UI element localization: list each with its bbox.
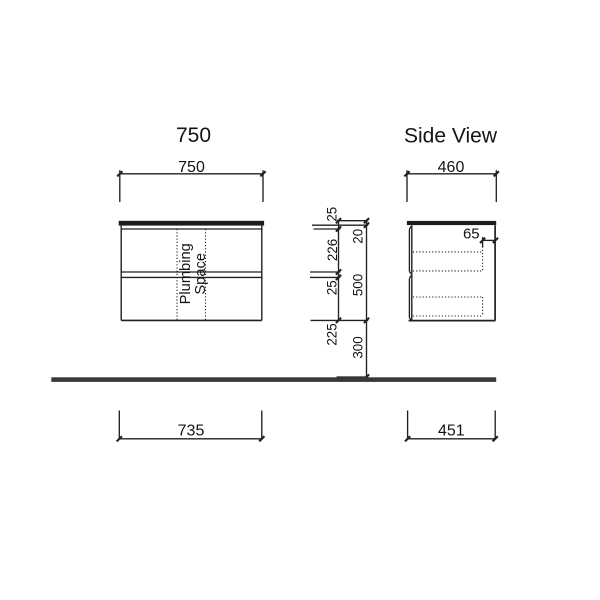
svg-text:65: 65 <box>463 225 480 242</box>
svg-text:25: 25 <box>324 280 339 295</box>
svg-text:735: 735 <box>178 423 205 440</box>
svg-text:750: 750 <box>176 124 211 147</box>
svg-text:20: 20 <box>351 229 366 244</box>
svg-text:Side View: Side View <box>404 125 498 148</box>
svg-text:225: 225 <box>324 323 339 345</box>
svg-text:451: 451 <box>438 423 465 440</box>
svg-text:25: 25 <box>324 207 339 222</box>
svg-text:500: 500 <box>351 274 366 296</box>
svg-text:226: 226 <box>325 239 340 261</box>
svg-text:Space: Space <box>193 253 209 295</box>
svg-text:Plumbing: Plumbing <box>178 243 194 304</box>
svg-text:300: 300 <box>351 336 366 358</box>
